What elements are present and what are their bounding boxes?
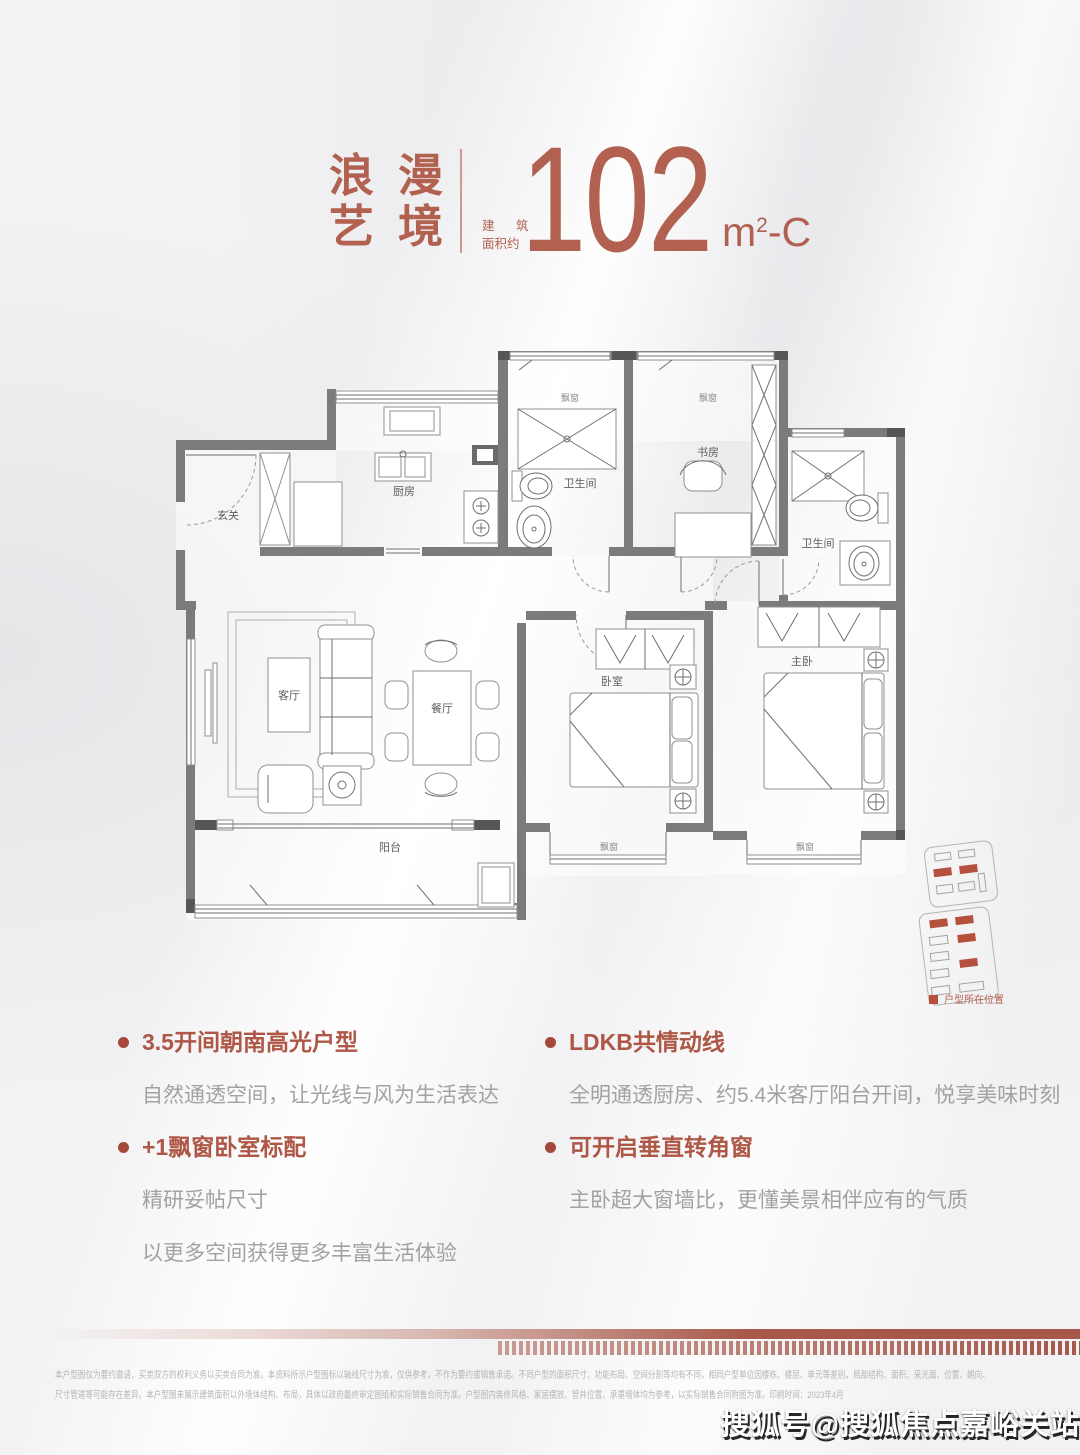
title-line-1: 浪漫 bbox=[329, 150, 467, 201]
unit-m: m bbox=[722, 209, 756, 255]
feature-heading-text: +1飘窗卧室标配 bbox=[142, 1134, 306, 1160]
master-furniture bbox=[758, 607, 888, 813]
room-label-study: 书房 bbox=[697, 446, 719, 459]
room-label-balcony: 阳台 bbox=[379, 840, 401, 854]
feature-line: 主卧超大窗墙比，更懂美景相伴应有的气质 bbox=[545, 1187, 1005, 1214]
bullet-dot-icon bbox=[118, 1037, 129, 1048]
room-label-bath2: 卫生间 bbox=[802, 536, 835, 550]
legend-label: 户型所在位置 bbox=[944, 993, 1004, 1006]
room-label-living: 客厅 bbox=[278, 688, 300, 702]
feature-heading: 3.5开间朝南高光户型 bbox=[118, 1028, 578, 1056]
disclaimer: 本户型图仅为要约邀请，买卖双方的权利义务以买卖合同为准。本资料所示户型图标以轴线… bbox=[55, 1366, 1065, 1406]
disclaimer-line-1: 本户型图仅为要约邀请，买卖双方的权利义务以买卖合同为准。本资料所示户型图标以轴线… bbox=[55, 1366, 863, 1386]
room-label-bedroom: 卧室 bbox=[601, 674, 623, 688]
bay-label-3: 飘窗 bbox=[600, 841, 618, 852]
feature-heading-text: 3.5开间朝南高光户型 bbox=[142, 1029, 358, 1055]
features-left-column: 3.5开间朝南高光户型 自然通透空间，让光线与风为生活表达 +1飘窗卧室标配 精… bbox=[118, 1028, 578, 1285]
unit-suffix: -C bbox=[768, 209, 811, 255]
feature-line: 全明通透厨房、约5.4米客厅阳台开间，悦享美味时刻 bbox=[545, 1082, 1005, 1109]
room-label-kitchen: 厨房 bbox=[393, 485, 415, 498]
duct-shaft-inner bbox=[477, 449, 493, 461]
feature-line: 自然通透空间，让光线与风为生活表达 bbox=[118, 1082, 578, 1109]
area-unit: m2-C bbox=[722, 212, 811, 253]
bay-label-1: 飘窗 bbox=[561, 392, 579, 403]
poster-page: 浪漫 艺境 建 筑 面积约 102 m2-C bbox=[0, 0, 1080, 1455]
room-label-dining: 餐厅 bbox=[431, 701, 453, 715]
bay-label-4: 飘窗 bbox=[796, 841, 814, 852]
feature-line: 精研妥帖尺寸 bbox=[118, 1187, 578, 1214]
title-line-2: 艺境 bbox=[329, 201, 467, 252]
feature-heading: LDKB共情动线 bbox=[545, 1028, 1005, 1056]
bullet-dot-icon bbox=[545, 1142, 556, 1153]
room-label-entry: 玄关 bbox=[217, 508, 239, 522]
area-value: 102 bbox=[521, 124, 712, 274]
feature-heading-text: LDKB共情动线 bbox=[569, 1029, 725, 1055]
footer-gradient-bar bbox=[40, 1329, 1080, 1339]
site-block-a bbox=[924, 840, 999, 908]
unit-exponent: 2 bbox=[756, 214, 768, 237]
floor-plan: 玄关 厨房 卫生间 书房 卫生间 客厅 餐厅 卧室 主卧 阳台 飘窗 飘窗 飘窗… bbox=[172, 343, 912, 933]
room-label-master: 主卧 bbox=[791, 655, 813, 668]
feature-line: 以更多空间获得更多丰富生活体验 bbox=[118, 1240, 578, 1267]
bay-label-2: 飘窗 bbox=[699, 392, 717, 403]
feature-heading: 可开启垂直转角窗 bbox=[545, 1133, 1005, 1161]
feature-heading-text: 可开启垂直转角窗 bbox=[569, 1134, 753, 1160]
feature-heading: +1飘窗卧室标配 bbox=[118, 1133, 578, 1161]
balcony-cabinet bbox=[478, 863, 514, 907]
title-divider bbox=[460, 149, 462, 253]
page-title: 浪漫 艺境 bbox=[329, 150, 467, 252]
site-plan-key: 户型所在位置 bbox=[915, 838, 1015, 1010]
room-label-bath1: 卫生间 bbox=[564, 476, 597, 490]
watermark: 搜狐号@搜狐焦点嘉峪关站 bbox=[721, 1401, 1080, 1443]
features-right-column: LDKB共情动线 全明通透厨房、约5.4米客厅阳台开间，悦享美味时刻 可开启垂直… bbox=[545, 1028, 1005, 1232]
site-block-b bbox=[918, 906, 999, 1006]
footer-comb-pattern bbox=[498, 1341, 1080, 1355]
bullet-dot-icon bbox=[118, 1142, 129, 1153]
bullet-dot-icon bbox=[545, 1037, 556, 1048]
legend-swatch bbox=[929, 995, 938, 1004]
entry-closet bbox=[260, 453, 290, 545]
